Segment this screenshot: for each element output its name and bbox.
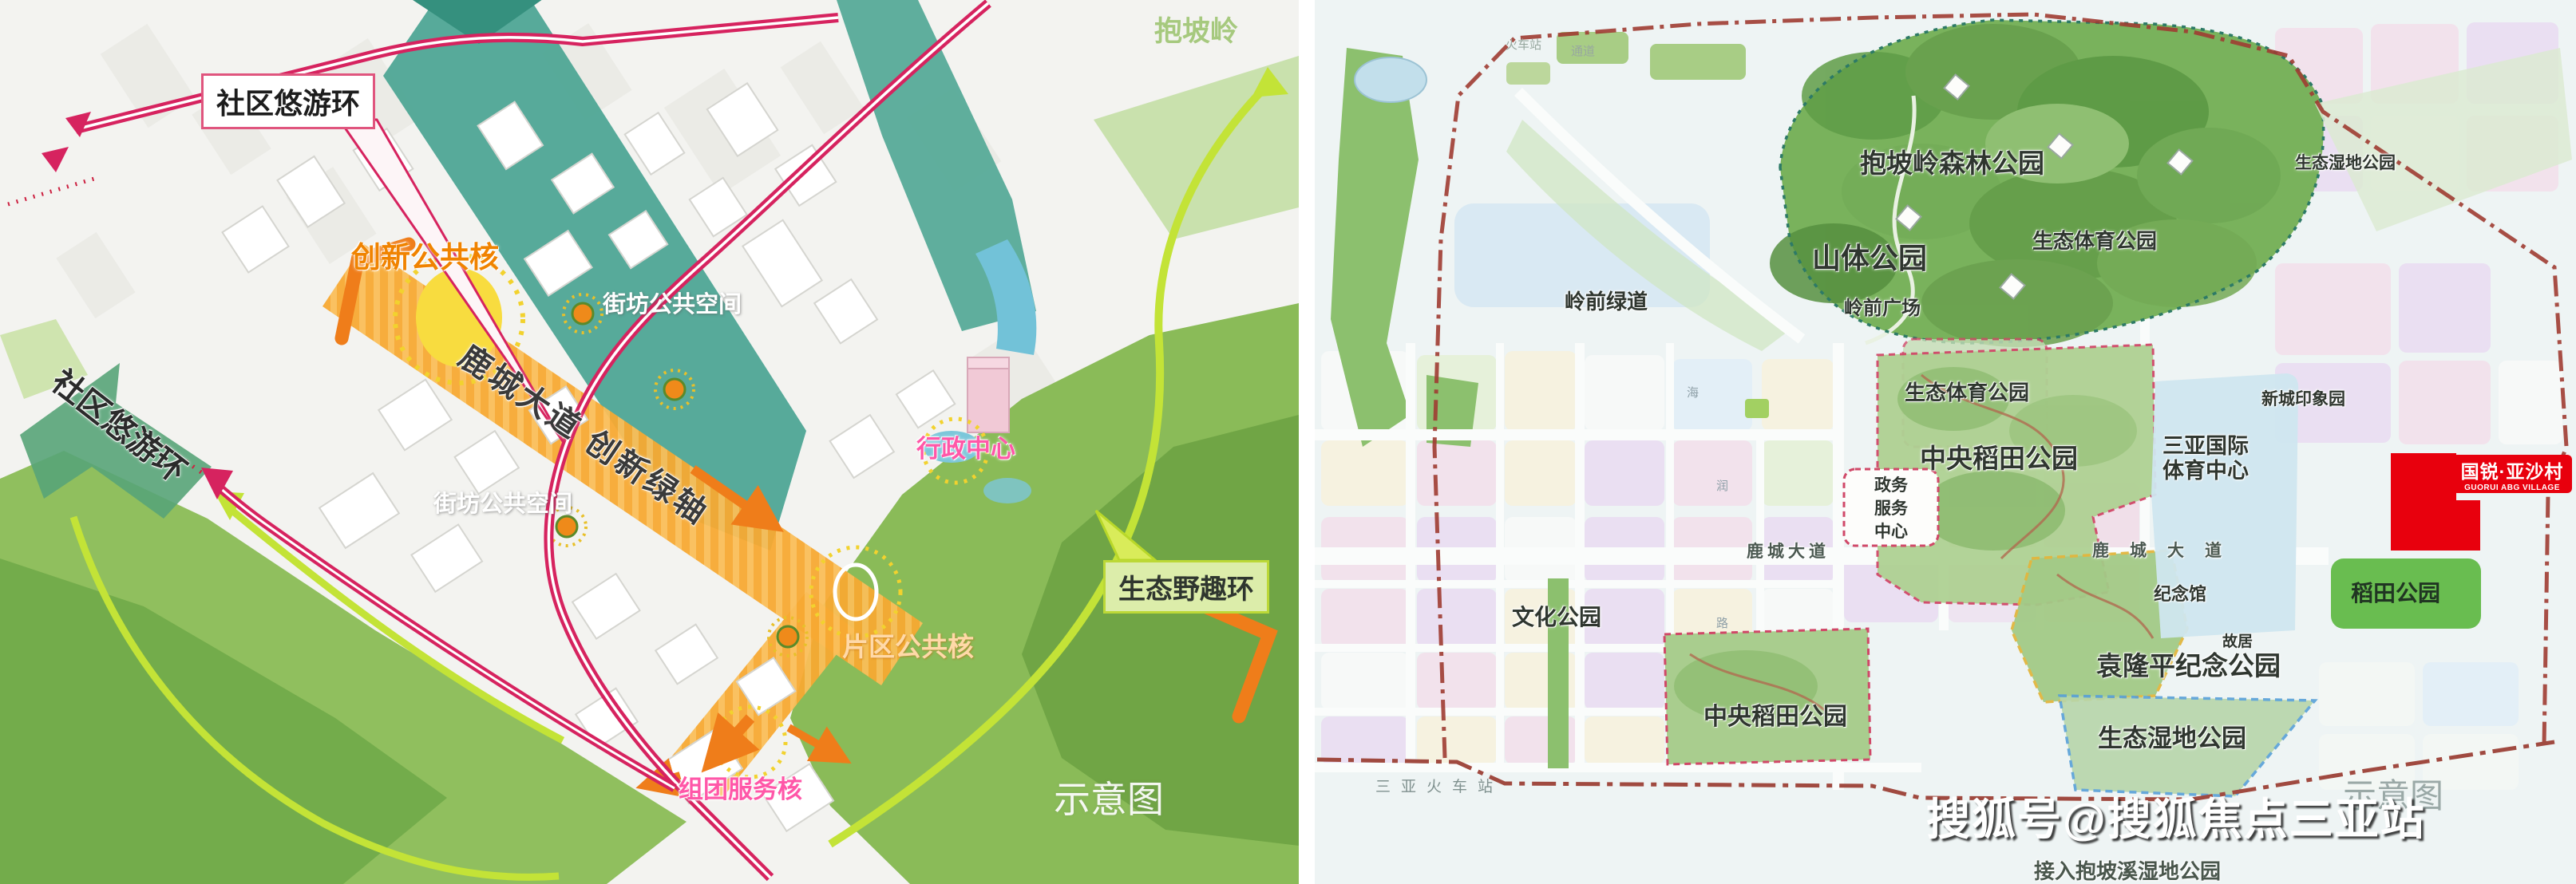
intl-sport-center-label: 三亚国际 体育中心: [2162, 434, 2249, 483]
road-char-lu: 路: [1716, 617, 1728, 630]
central-paddy-upper-label: 中央稻田公园: [1920, 444, 2078, 474]
admin-tower: [967, 357, 1009, 432]
intl-sport-line1: 三亚国际: [2162, 434, 2249, 459]
paddy-park-label: 稻田公园: [2351, 581, 2440, 606]
lucheng-ave-right-label: 鹿城大道: [2092, 542, 2242, 561]
mountain-park-label: 山体公园: [1812, 242, 1927, 274]
culture-park-label: 文化公园: [1512, 605, 1601, 630]
masterplan-art: [1315, 0, 2576, 884]
sohu-watermark: 搜狐号@搜狐焦点三亚站: [1926, 795, 2426, 845]
road-char-hai: 海: [1687, 386, 1699, 400]
eco-sport-park-zone-label: 生态体育公园: [1905, 381, 2029, 405]
memorial-hall-label: 纪念馆: [2154, 584, 2206, 604]
new-town-garden-label: 新城印象园: [2261, 390, 2345, 409]
eco-wild-loop-label-box: 生态野趣环: [1103, 560, 1269, 614]
concept-diagram-art: [0, 0, 1299, 884]
guorui-logo-en: GUORUI ABG VILLAGE: [2452, 483, 2572, 492]
road-char-run: 润: [1716, 479, 1728, 493]
central-paddy-lower-label: 中央稻田公园: [1703, 704, 1847, 732]
innovation-core-label: 创新公共核: [351, 241, 499, 275]
baopo-ridge-label: 抱坡岭: [1154, 16, 1238, 48]
lingqian-greenway-label: 岭前绿道: [1565, 290, 1648, 314]
eco-sport-park-top-label: 生态体育公园: [2032, 230, 2157, 254]
intl-sport-line2: 体育中心: [2162, 459, 2249, 483]
cluster-core-label: 组团服务核: [679, 775, 802, 804]
gov-line3: 中心: [1846, 520, 1937, 543]
passage-fragment-label: 通道: [1571, 45, 1595, 58]
guorui-logo: 国锐·亚沙村 GUORUI ABG VILLAGE: [2452, 456, 2572, 492]
block-public-space-label-a: 街坊公共空间: [603, 292, 742, 318]
eco-wetland-bottom-label: 生态湿地公园: [2098, 724, 2246, 753]
railway-station-label: 三亚火车站: [1375, 779, 1503, 796]
eco-wetland-right-label: 生态湿地公园: [2295, 154, 2396, 173]
lingqian-plaza-label: 岭前广场: [1844, 298, 1921, 320]
district-core-label: 片区公共核: [842, 632, 974, 662]
yuan-longping-park-label: 袁隆平纪念公园: [2096, 651, 2281, 681]
masterplan-panel: 抱坡岭森林公园 山体公园 生态体育公园 岭前广场 岭前绿道 生态湿地公园 新城印…: [1315, 0, 2576, 884]
guorui-logo-cn: 国锐·亚沙村: [2452, 456, 2572, 483]
lucheng-ave-left-label: 鹿城大道: [1747, 543, 1830, 562]
former-residence-label: 故居: [2222, 633, 2253, 651]
schematic-watermark-left: 示意图: [1054, 779, 1164, 821]
admin-center-label: 行政中心: [916, 435, 1015, 464]
screenshot-stage: 社区悠游环 社区悠游环 创新公共核 街坊公共空间 鹿城大道 创新绿轴 街坊公共空…: [0, 0, 2576, 884]
community-loop-label-box: 社区悠游环: [201, 73, 375, 129]
concept-diagram-panel: 社区悠游环 社区悠游环 创新公共核 街坊公共空间 鹿城大道 创新绿轴 街坊公共空…: [0, 0, 1299, 884]
station-fragment-label: 火车站: [1506, 38, 1541, 52]
forest-park-label: 抱坡岭森林公园: [1860, 148, 2044, 179]
pond: [1355, 57, 1426, 102]
block-public-space-label-b: 街坊公共空间: [433, 491, 572, 518]
gov-line2: 服务: [1846, 497, 1937, 520]
gov-service-center-label: 政务 服务 中心: [1846, 474, 1937, 543]
gov-line1: 政务: [1846, 474, 1937, 497]
connect-wetland-note: 接入抱坡溪湿地公园: [2034, 860, 2221, 884]
